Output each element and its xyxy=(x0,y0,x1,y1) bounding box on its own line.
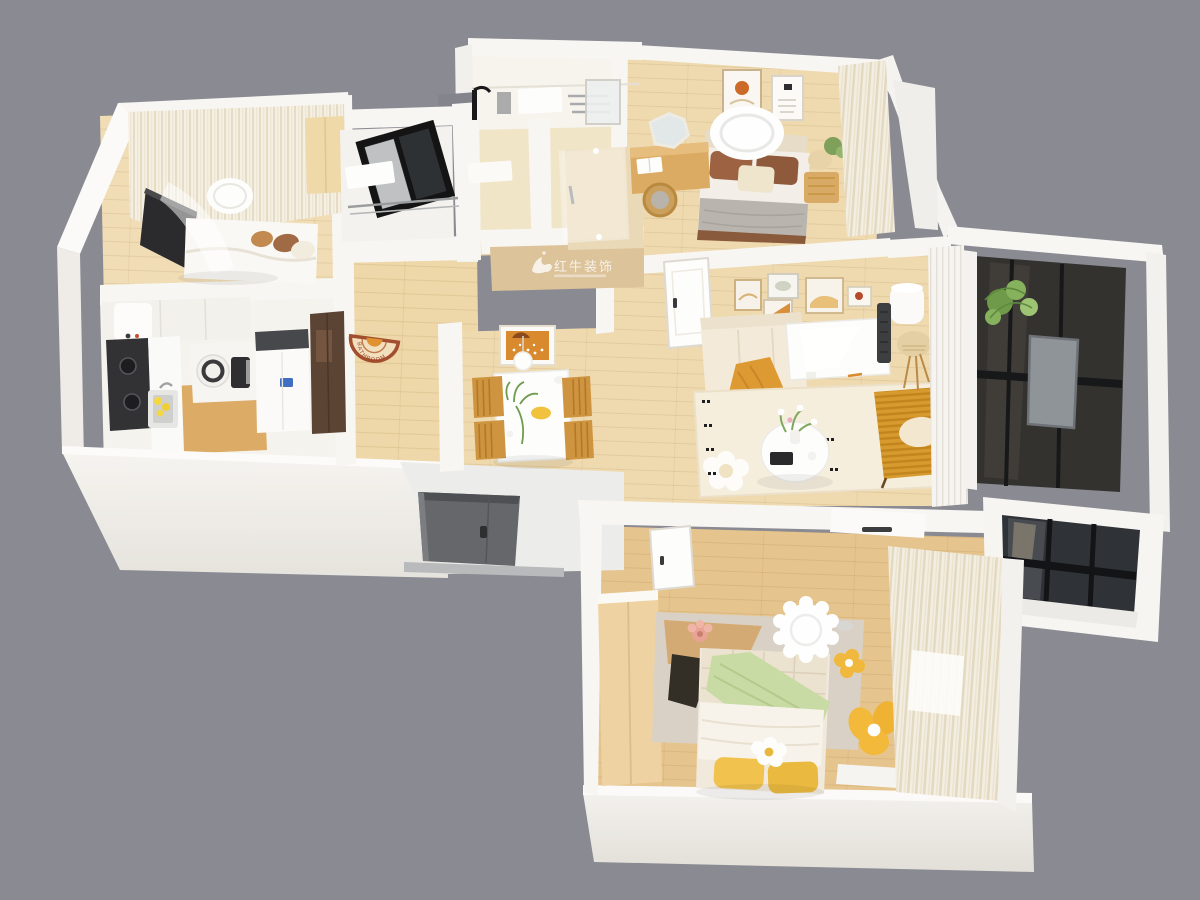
bathroom-mirror xyxy=(586,80,620,124)
chair-right-1 xyxy=(562,376,592,418)
art-glyph xyxy=(784,84,792,90)
entry-bench xyxy=(467,160,512,183)
vanity-tray xyxy=(517,87,562,114)
entry-door xyxy=(418,492,520,566)
black-faucet xyxy=(472,90,477,120)
cabinet-glass xyxy=(316,330,332,362)
floorplan-render: 红牛装饰 xyxy=(0,0,1200,900)
large-bedroom-door xyxy=(650,526,694,590)
burner xyxy=(120,358,136,374)
chair-cushion xyxy=(651,191,669,209)
outdoor-unit-panel xyxy=(1028,336,1078,428)
pendant-lamp xyxy=(514,352,532,370)
cream-pillow xyxy=(737,165,775,193)
watermark: 红牛装饰 xyxy=(490,243,644,291)
ac-vent xyxy=(862,527,892,532)
wall-dining-west xyxy=(438,322,464,472)
small-cup xyxy=(808,452,817,461)
entry-door-handle xyxy=(480,526,487,538)
rattan-floor-lamp xyxy=(897,331,931,357)
wall-art-2 xyxy=(772,76,803,120)
coffee-maker-side xyxy=(246,360,250,384)
laundry-room xyxy=(340,124,459,242)
bottle-cluster xyxy=(497,92,511,114)
balcony-sill xyxy=(962,250,977,490)
lemon-2 xyxy=(162,403,170,411)
door-handle-2 xyxy=(660,556,664,565)
lemon-3 xyxy=(157,410,164,417)
nightstand xyxy=(804,172,839,203)
table-item xyxy=(806,372,816,378)
curtains-master xyxy=(838,60,895,237)
watermark-subtitle-line xyxy=(554,275,606,278)
southwest-wall-face xyxy=(62,452,448,578)
water-heater xyxy=(114,303,152,340)
south-wall-bedroom-face xyxy=(583,793,1034,872)
burner-2 xyxy=(124,394,140,410)
chair-right-2 xyxy=(564,420,594,460)
balcony xyxy=(962,250,1126,492)
window-behind-curtain xyxy=(908,650,964,716)
black-tray xyxy=(770,452,793,465)
door-handle xyxy=(673,298,677,308)
vase xyxy=(790,430,800,444)
lemon xyxy=(154,397,162,405)
wall-laundry-north xyxy=(336,106,462,129)
louver-partition xyxy=(928,245,968,507)
fruit-plate xyxy=(531,407,551,420)
art-circle xyxy=(735,81,749,95)
balcony-east-wall xyxy=(1146,252,1170,532)
cup xyxy=(507,431,514,438)
bay-interior-hint xyxy=(1012,522,1036,560)
ac-top xyxy=(891,283,923,293)
watermark-title: 红牛装饰 xyxy=(554,259,614,274)
cooktop xyxy=(106,338,152,431)
fridge-top-band xyxy=(255,329,309,351)
watermark-star xyxy=(542,251,545,254)
